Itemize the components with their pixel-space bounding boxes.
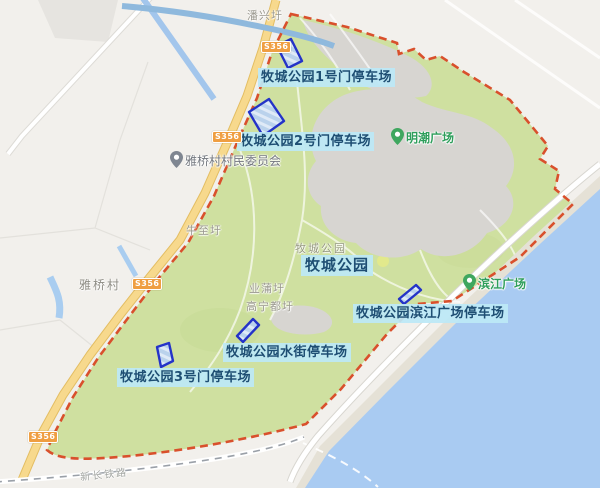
poi-label-binjiang-square: 滨江广场 [478, 275, 526, 292]
parking-label-gate2[interactable]: 牧城公园2号门停车场 [237, 132, 374, 151]
place-label-yaqiao-village: 雅桥村 [79, 276, 121, 293]
plaza-dot [456, 167, 478, 189]
map-canvas[interactable]: 牧城公园1号门停车场 牧城公园2号门停车场 牧城公园3号门停车场 牧城公园水街停… [0, 0, 600, 488]
place-label-niuzhi: 牛至圩 [186, 222, 222, 238]
road-badge-s356-1: S356 [261, 41, 291, 53]
parking-polygon-gate3[interactable] [157, 343, 173, 367]
park-basemap-label: 牧城公园 [295, 240, 347, 256]
park-name-label[interactable]: 牧城公园 [301, 255, 373, 276]
poi-label-mingchao-square: 明潮广场 [406, 129, 454, 146]
scenic-pin-icon [463, 274, 476, 291]
parking-label-binjiang[interactable]: 牧城公园滨江广场停车场 [353, 304, 508, 323]
poi-village-committee[interactable]: 雅桥村村民委员会 [170, 151, 281, 169]
road-badge-s356-2: S356 [212, 131, 242, 143]
parking-label-water-street[interactable]: 牧城公园水街停车场 [223, 343, 351, 362]
poi-mingchao-square[interactable]: 明潮广场 [391, 128, 454, 146]
poi-binjiang-square[interactable]: 滨江广场 [463, 274, 526, 292]
parking-label-gate3[interactable]: 牧城公园3号门停车场 [117, 368, 254, 387]
poi-label-village-committee: 雅桥村村民委员会 [185, 152, 281, 169]
location-pin-icon [170, 151, 183, 168]
scenic-pin-icon [391, 128, 404, 145]
parking-label-gate1[interactable]: 牧城公园1号门停车场 [258, 68, 395, 87]
place-label-yepu: 业蒲圩 [249, 280, 285, 296]
road-badge-s356-4: S356 [28, 431, 58, 443]
place-label-panxing: 潘兴圩 [247, 7, 283, 23]
place-label-gaoningdu: 高宁都圩 [246, 298, 294, 314]
road-badge-s356-3: S356 [132, 278, 162, 290]
